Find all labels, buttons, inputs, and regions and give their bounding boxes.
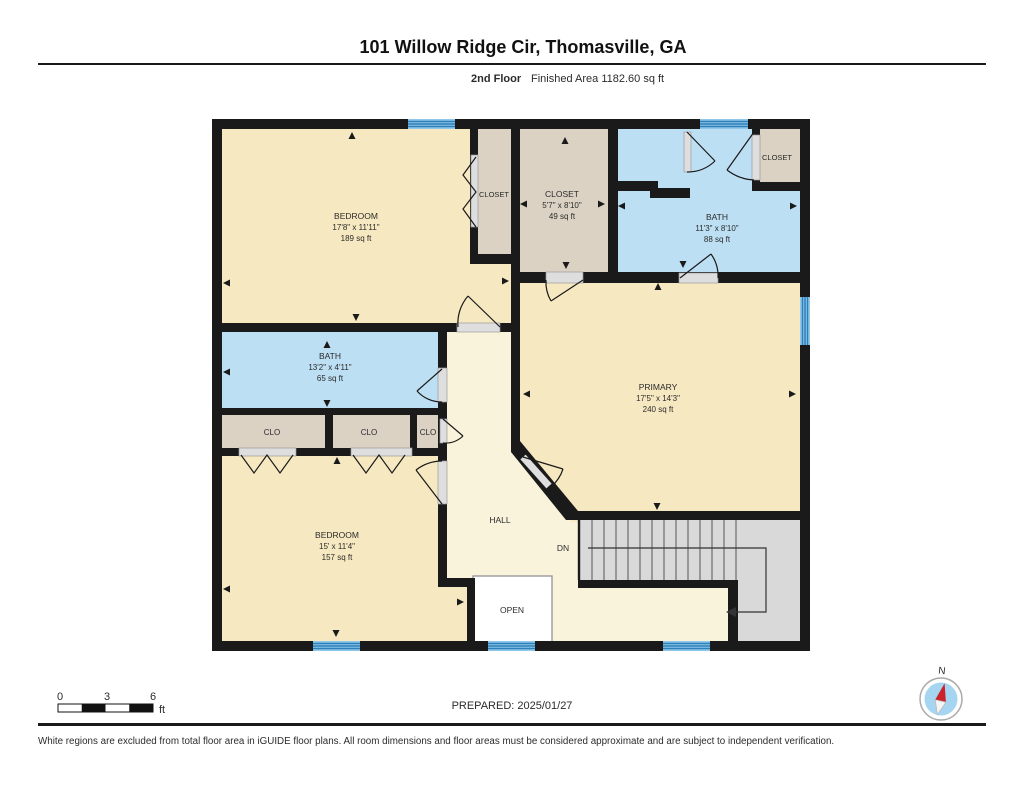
label-bath-2: BATH	[319, 351, 341, 361]
window-icon	[408, 119, 455, 129]
scale-bar: 0 3 6 ft	[57, 691, 165, 716]
scale-tick-0: 0	[57, 691, 63, 703]
window-icon	[700, 119, 748, 129]
area-bedroom-1: 189 sq ft	[341, 234, 372, 243]
stairs-upper	[578, 520, 800, 580]
finished-area-label: Finished Area 1182.60 sq ft	[531, 73, 664, 85]
label-bath-1: BATH	[706, 212, 728, 222]
stairs-landing	[738, 580, 800, 641]
footer-divider	[38, 723, 986, 726]
scale-bar-segment	[129, 704, 153, 712]
header-divider	[38, 63, 986, 65]
area-bath-1: 88 sq ft	[704, 235, 731, 244]
area-bath-2: 65 sq ft	[317, 374, 344, 383]
label-open: OPEN	[500, 605, 524, 615]
window-icon	[800, 297, 810, 345]
prepared-date: PREPARED: 2025/01/27	[452, 700, 573, 712]
label-closet-2: CLOSET	[545, 189, 579, 199]
label-primary: PRIMARY	[639, 382, 678, 392]
window-icon	[663, 641, 710, 651]
label-bedroom-2: BEDROOM	[315, 530, 359, 540]
scale-unit: ft	[159, 704, 165, 716]
scale-tick-3: 3	[104, 691, 110, 703]
area-bedroom-2: 157 sq ft	[322, 553, 353, 562]
floor-plan-page: 101 Willow Ridge Cir, Thomasville, GA 2n…	[0, 0, 1024, 791]
dims-bath-2: 13'2" x 4'11"	[308, 363, 351, 372]
compass: N	[920, 666, 962, 720]
label-hall: HALL	[489, 515, 511, 525]
header: 101 Willow Ridge Cir, Thomasville, GA 2n…	[38, 37, 986, 85]
dims-closet-2: 5'7" x 8'10"	[542, 201, 582, 210]
dims-bedroom-1: 17'8" x 11'11"	[332, 223, 379, 232]
floor-label: 2nd Floor	[471, 73, 522, 85]
label-clo-1: CLO	[264, 428, 280, 437]
label-dn: DN	[557, 543, 569, 553]
label-clo-3: CLO	[420, 428, 436, 437]
scale-bar-segment	[82, 704, 106, 712]
window-icon	[313, 641, 360, 651]
dims-bedroom-2: 15' x 11'4"	[319, 542, 355, 551]
compass-north-label: N	[938, 666, 946, 678]
scale-tick-6: 6	[150, 691, 156, 703]
disclaimer-text: White regions are excluded from total fl…	[38, 736, 834, 747]
label-closet-1: CLOSET	[479, 190, 509, 199]
label-clo-2: CLO	[361, 428, 377, 437]
area-closet-2: 49 sq ft	[549, 212, 576, 221]
window-icon	[488, 641, 535, 651]
page-title: 101 Willow Ridge Cir, Thomasville, GA	[360, 37, 687, 57]
dims-primary: 17'5" x 14'3"	[636, 394, 680, 403]
floor-plan: BEDROOM 17'8" x 11'11" 189 sq ft CLOSET …	[212, 119, 810, 651]
label-closet-3: CLOSET	[762, 153, 792, 162]
area-primary: 240 sq ft	[643, 405, 674, 414]
dims-bath-1: 11'3" x 8'10"	[695, 224, 738, 233]
label-bedroom-1: BEDROOM	[334, 211, 378, 221]
